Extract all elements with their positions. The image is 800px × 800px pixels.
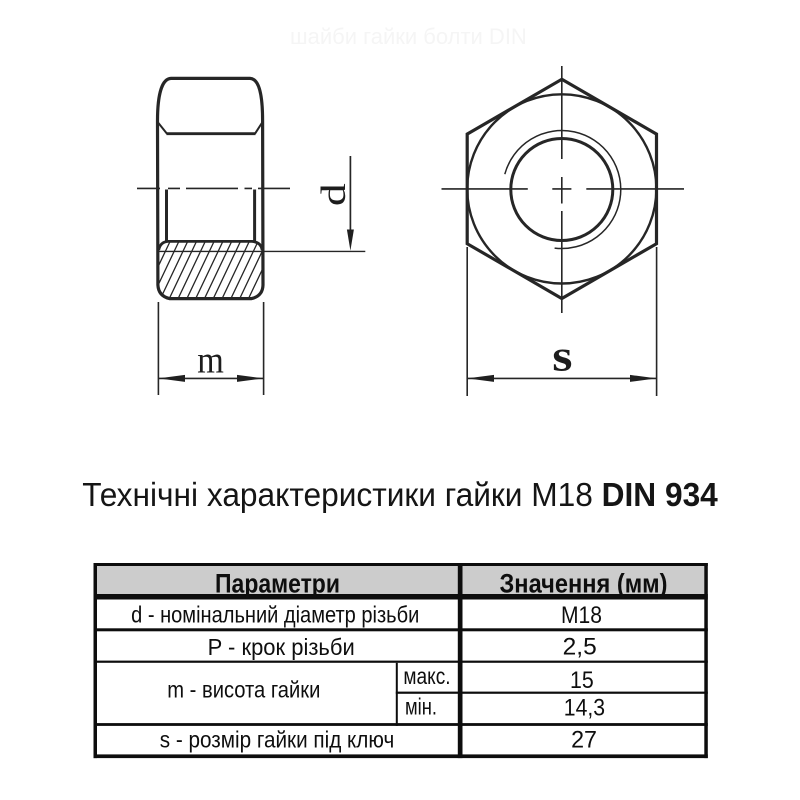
svg-text:d - номінальний діаметр різьби: d - номінальний діаметр різьби [131,601,419,628]
svg-text:m - висота гайки: m - висота гайки [167,676,320,703]
svg-text:s - розмір гайки під ключ: s - розмір гайки під ключ [160,726,394,752]
svg-text:27: 27 [571,726,597,754]
svg-text:макс.: макс. [403,664,450,689]
svg-text:шайби гайки болти DIN: шайби гайки болти DIN [290,24,527,49]
svg-text:P - крок різьби: P - крок різьби [208,635,355,661]
svg-text:d: d [314,183,353,206]
svg-text:2,5: 2,5 [563,634,597,661]
svg-text:М18: М18 [561,601,602,629]
svg-text:14,3: 14,3 [564,693,605,721]
svg-text:15: 15 [570,666,594,694]
svg-text:Технічні характеристики гайки: Технічні характеристики гайки М18 DIN 93… [82,476,718,513]
svg-text:s: s [552,332,572,380]
svg-text:Значення (мм): Значення (мм) [500,569,668,599]
svg-text:Параметри: Параметри [215,569,340,599]
svg-text:мін.: мін. [405,695,437,720]
svg-text:m: m [197,339,224,381]
